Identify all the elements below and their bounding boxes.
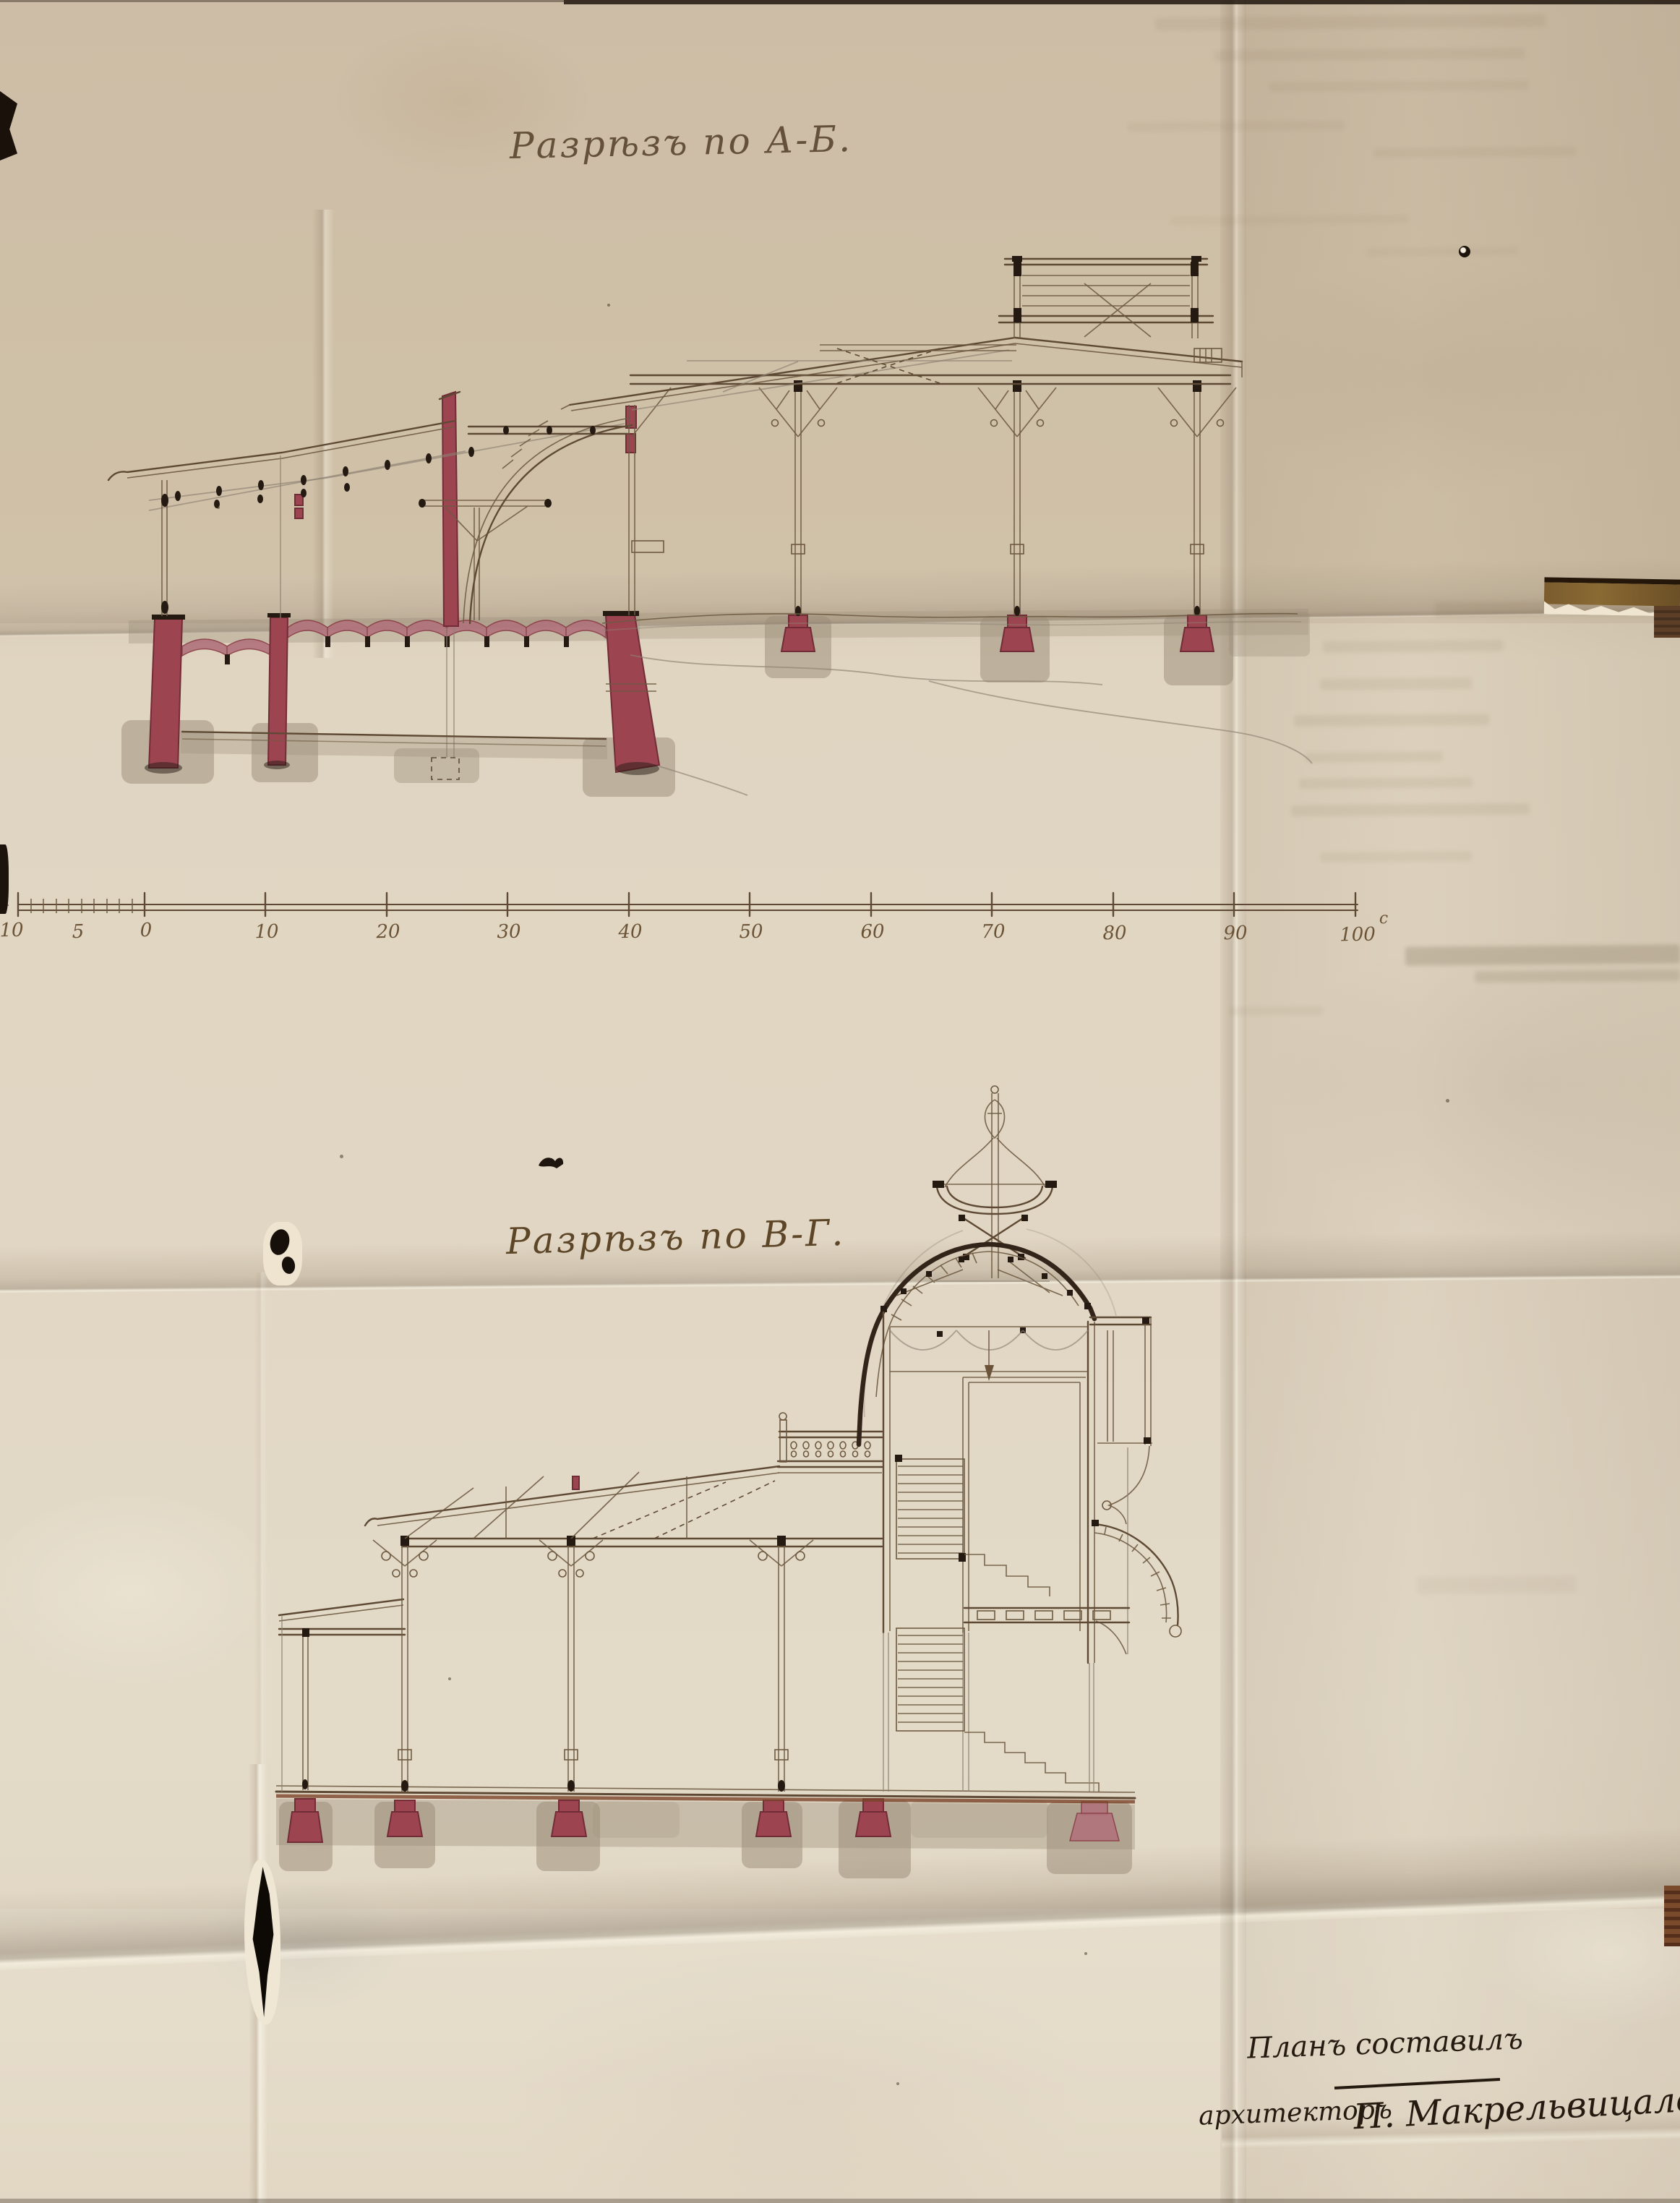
scale-label: 10 (254, 921, 279, 944)
section-vg-drawing (276, 1086, 1181, 1878)
scale-label: 70 (981, 921, 1006, 944)
signature-line1: Планъ составилъ (1246, 2022, 1523, 2065)
paper-speck (217, 506, 220, 509)
pinhole (1459, 246, 1470, 257)
ink-blot (539, 1158, 563, 1168)
edge-nick-left (0, 844, 9, 914)
paper-speck (896, 2082, 899, 2085)
table-edge-top (564, 0, 1680, 4)
paper-speck (1084, 1952, 1087, 1955)
table-wood-notch-right (1664, 1886, 1680, 1946)
photo-of-drawing: Разрѣзъ по А-Б. Разрѣзъ по В-Г. 10 5 0 1… (0, 0, 1680, 2203)
scale-label: 30 (497, 921, 521, 944)
signature-block: Планъ составилъ архитекторъ П. Макрельви… (1193, 2017, 1655, 2147)
scale-label: 50 (739, 921, 763, 944)
paper-speck (448, 1677, 451, 1680)
scale-unit-mark: с (1379, 910, 1389, 928)
scale-label: 100 (1340, 924, 1376, 946)
scale-label: 40 (618, 921, 643, 944)
scale-label: 5 (72, 921, 84, 943)
paper-speck (340, 1155, 343, 1158)
scale-bar (3, 893, 1358, 916)
scale-label: 60 (860, 921, 885, 944)
scale-label: 90 (1223, 923, 1248, 945)
table-wood-through-tear (1544, 582, 1680, 606)
scale-label: 0 (140, 920, 152, 941)
table-wood-corner (1654, 606, 1680, 638)
table-edge-top-left (0, 0, 564, 2)
paper-speck (607, 304, 610, 307)
scale-label: 10 (0, 920, 24, 942)
section-ab-drawing (108, 256, 1312, 797)
title-section-ab: Разрѣзъ по А-Б. (509, 118, 852, 167)
table-edge-bottom (0, 2199, 1680, 2203)
scale-label: 20 (376, 921, 400, 944)
paper-speck (1446, 1099, 1449, 1103)
title-section-vg: Разрѣзъ по В-Г. (505, 1212, 846, 1262)
scale-label: 80 (1102, 923, 1127, 945)
signature-name: П. Макрельвицаловъ. (1353, 2076, 1680, 2138)
